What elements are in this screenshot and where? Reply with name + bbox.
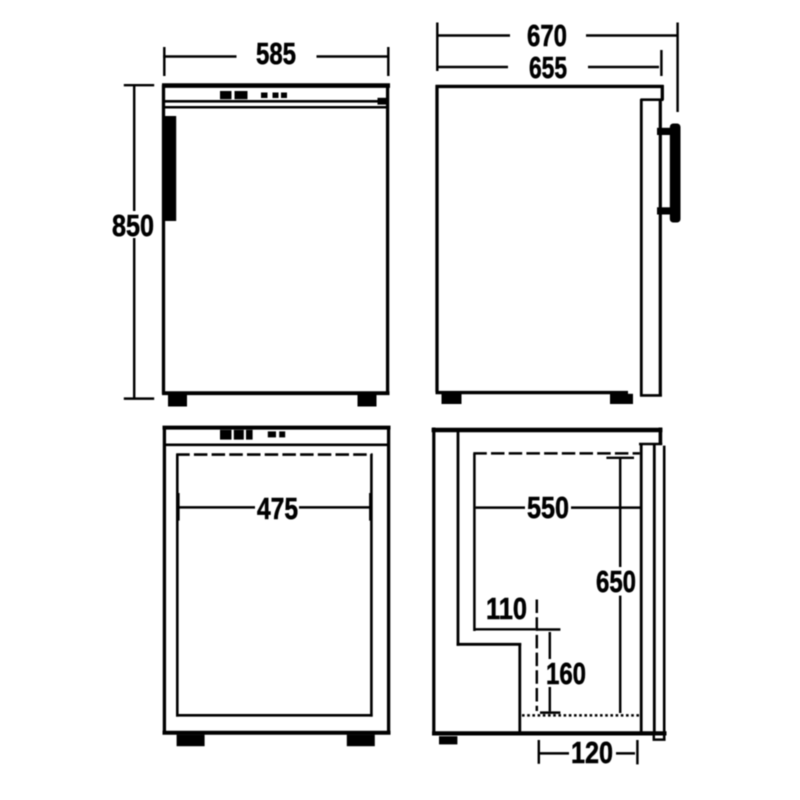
svg-text:585: 585: [256, 37, 296, 71]
svg-text:850: 850: [112, 209, 154, 243]
svg-text:655: 655: [529, 51, 567, 85]
svg-text:120: 120: [571, 736, 613, 770]
svg-text:670: 670: [527, 19, 567, 53]
svg-text:110: 110: [486, 592, 527, 626]
svg-text:475: 475: [257, 492, 298, 526]
svg-text:550: 550: [527, 491, 569, 525]
svg-text:650: 650: [596, 565, 636, 599]
svg-text:160: 160: [546, 657, 586, 691]
